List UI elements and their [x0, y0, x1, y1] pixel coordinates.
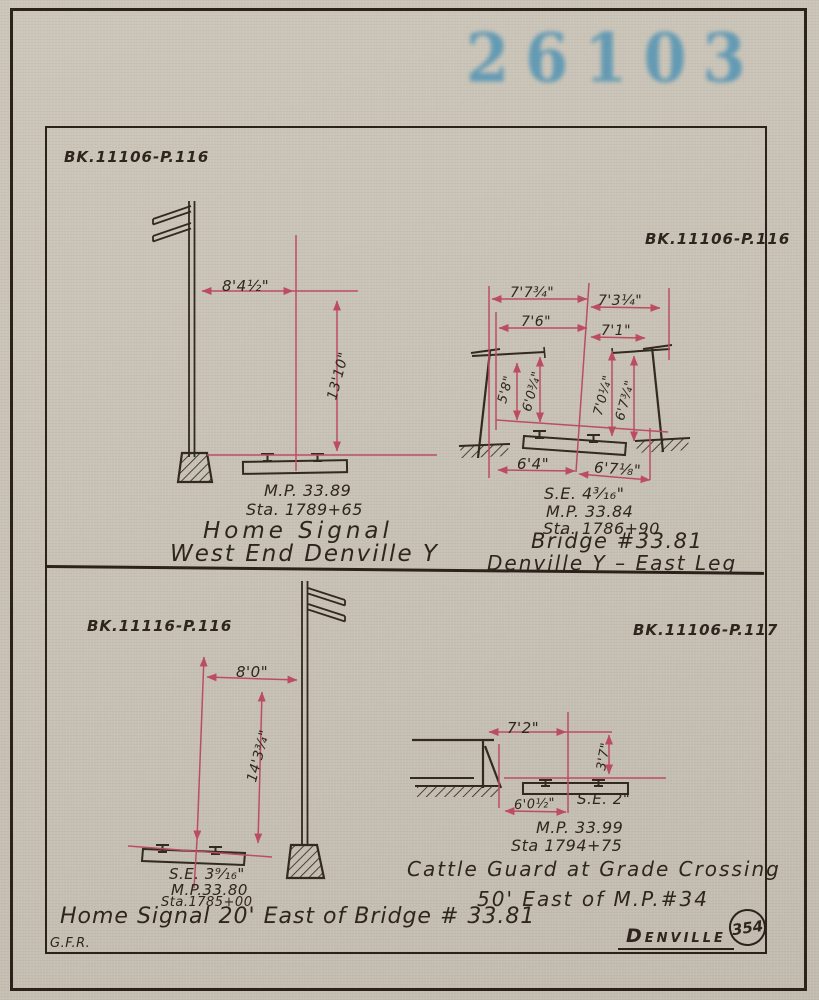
bridge-east-leg-linework: [459, 345, 690, 458]
dim-mid-right-label: 7'1": [601, 323, 631, 339]
caption-signal-east: Home Signal 20' East of Bridge # 33.81: [60, 904, 535, 929]
location-title: Denville: [618, 925, 734, 950]
caption-cattle-line2: 50' East of M.P.#34: [477, 887, 709, 911]
superelevation-cattle: S.E. 2": [577, 790, 630, 808]
caption-bridge-line2: Denville Y – East Leg: [487, 551, 737, 575]
sheet-number: 354: [731, 916, 765, 938]
milepost-cattle: M.P. 33.99: [536, 818, 623, 837]
book-ref-bottom-left: BK.11116-P.116: [87, 617, 232, 635]
dim-top-left-label: 7'7¾": [510, 285, 554, 301]
superelevation-bridge: S.E. 4³⁄₁₆": [544, 484, 624, 503]
dim-top-label-cattle: 7'2": [507, 719, 539, 737]
dim-top-right-label: 7'3¼": [598, 293, 642, 309]
caption-cattle-line1: Cattle Guard at Grade Crossing: [407, 857, 781, 881]
caption-west-line2: West End Denville Y: [170, 541, 439, 567]
book-ref-bottom-right: BK.11106-P.117: [633, 621, 778, 639]
dim-offset-label-west: 8'4½": [222, 277, 269, 295]
dim-bottom-left-label: 6'4": [517, 455, 549, 473]
book-ref-top-right: BK.11106-P.116: [645, 230, 790, 248]
station-west: Sta. 1789+65: [246, 500, 363, 519]
dim-bottom-right-label: 6'7⅛": [593, 458, 641, 479]
home-signal-west-dimension-lines: [202, 235, 437, 471]
milepost-west: M.P. 33.89: [264, 481, 351, 500]
home-signal-west-linework: [153, 201, 347, 482]
scanned-drawing-sheet: 26103: [0, 0, 819, 1000]
dim-mid-left-label: 7'6": [521, 314, 551, 330]
station-cattle: Sta 1794+75: [511, 836, 622, 855]
caption-bridge-line1: Bridge #33.81: [531, 529, 703, 553]
dim-bottom-label-cattle: 6'0½": [514, 796, 556, 813]
dim-offset-label-east: 8'0": [236, 663, 268, 681]
drafter-initials: G.F.R.: [50, 936, 90, 951]
book-ref-top-left: BK.11106-P.116: [64, 148, 209, 166]
